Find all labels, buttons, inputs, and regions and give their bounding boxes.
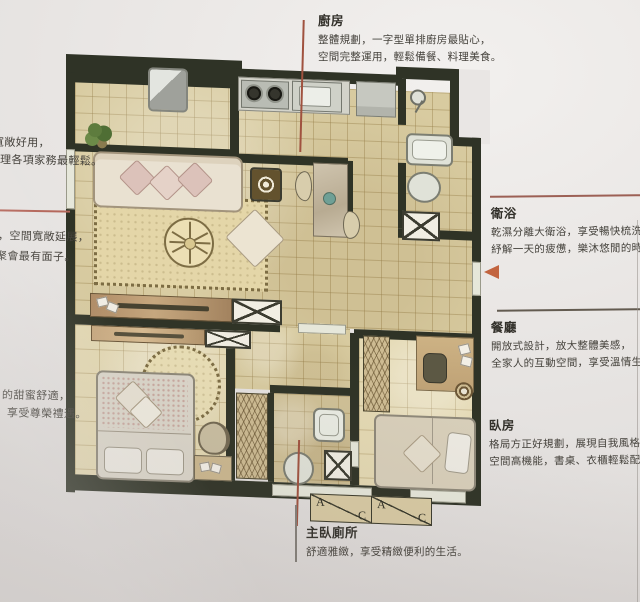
hall-sliding-door [298, 323, 346, 335]
desk-item [458, 343, 471, 355]
bathtub-icon [406, 133, 453, 167]
bathroom-annotation: 衛浴 乾濕分離大衛浴，享受暢快梳洗， 紓解一天的疲憊，樂沐悠閒的時光。 [491, 201, 640, 259]
dining-line: 全家人的互動空間，享受溫情生活。 [491, 354, 640, 373]
bed-master-icon [96, 370, 195, 483]
floor-hallway-tiles [235, 324, 350, 392]
wall-bedroom2-left-a [350, 333, 359, 441]
wardrobe-bedroom2-icon [363, 335, 390, 412]
master-toilet-title: 主臥廁所 [306, 522, 468, 541]
bedroom-line: 空間高機能，書桌、衣櫃輕鬆配置。 [489, 452, 640, 471]
left-bottom-line1: 的甜蜜舒適， [2, 386, 71, 403]
nightstand-icon [194, 455, 232, 481]
wall-tv-icon [148, 67, 188, 113]
wardrobe-master-icon [236, 393, 268, 480]
entrance-threshold [472, 262, 481, 296]
dining-separator-line [497, 308, 640, 311]
ac-label-a: A [377, 497, 386, 512]
dresser-shaft-icon [205, 329, 251, 349]
left-mid-line1: ，空間寬敞延展， [0, 227, 89, 245]
stove-burner [268, 87, 282, 102]
wall-bath-left-a [398, 79, 406, 125]
speaker-icon [455, 382, 473, 401]
bedroom-chair-icon [198, 421, 230, 455]
duvet-fold [98, 430, 191, 435]
kitchen-line: 整體規劃，一字型單排廚房最貼心， [318, 32, 502, 49]
toilet-icon [407, 171, 441, 203]
side-table-icon [250, 167, 282, 202]
bath-separator-line [490, 194, 640, 198]
shower-tray-icon [313, 407, 345, 442]
bedroom-title: 臥房 [489, 413, 640, 434]
bedroom-annotation: 臥房 格局方正好規劃，展現自我風格， 空間高機能，書桌、衣櫃輕鬆配置。 [489, 413, 640, 471]
left-separator-line [0, 209, 70, 212]
cabinet-shaft-icon [232, 298, 282, 325]
bed-pillow [146, 448, 184, 475]
brochure-page: A C A C 廚房 整體規劃，一字型單排廚房最貼心， 空間完整運用，輕鬆備餐、… [0, 0, 640, 602]
page-edge-line [637, 220, 639, 602]
dining-chair-icon [295, 171, 312, 202]
master-toilet-line: 舒適雅緻，享受精緻便利的生活。 [306, 544, 468, 561]
stove-burner [247, 86, 261, 101]
bed-cushion [402, 434, 442, 474]
bed-pillow [104, 446, 142, 473]
dining-annotation: 餐廳 開放式設計，放大整體美感， 全家人的互動空間，享受溫情生活。 [491, 315, 640, 373]
kitchen-annotation: 廚房 整體規劃，一字型單排廚房最貼心， 空間完整運用，輕鬆備餐、料理美食。 [318, 10, 502, 66]
dining-line: 開放式設計，放大整體美感， [491, 337, 640, 356]
kitchen-title: 廚房 [318, 10, 502, 29]
dresser-tv-icon [114, 332, 184, 339]
bath-shaft-icon [324, 450, 352, 481]
wall-left [66, 72, 75, 492]
left-top-line2: 理各項家務最輕鬆。 [0, 151, 103, 169]
bathtub-inner [412, 139, 447, 160]
bed-pillow [444, 432, 472, 475]
stove-icon [241, 80, 289, 110]
sink-basin [299, 86, 331, 107]
ac-label-a: A [316, 495, 325, 510]
dining-title: 餐廳 [491, 315, 640, 336]
left-bottom-line2: 享受尊榮禮遇。 [7, 404, 87, 421]
bed-bedroom2-icon [374, 414, 476, 492]
bedroom-line: 格局方正好規劃，展現自我風格， [489, 435, 640, 454]
bathroom-title: 衛浴 [491, 201, 640, 222]
page-notch [459, 69, 490, 144]
entrance-arrow-icon [484, 265, 499, 279]
book-icon [210, 463, 222, 474]
floor-plan: A C A C [66, 50, 490, 532]
ac-unit-box: A C [310, 493, 372, 523]
tv-icon [117, 303, 209, 312]
desk-chair-icon [423, 353, 447, 384]
kitchen-line: 空間完整運用，輕鬆備餐、料理美食。 [318, 49, 502, 66]
desk-icon [416, 335, 474, 392]
master-toilet-annotation: 主臥廁所 舒適雅緻，享受精緻便利的生活。 [306, 522, 468, 561]
shower-tray-inner [319, 414, 339, 437]
teapot-icon [323, 192, 336, 205]
pipe-shaft-icon [402, 211, 440, 241]
desk-item [460, 355, 473, 367]
toilet-text-rule [295, 505, 297, 562]
refrigerator-icon [356, 81, 396, 118]
wall-bath-right [450, 73, 459, 145]
bathroom-line: 乾濕分離大衛浴，享受暢快梳洗， [491, 223, 640, 242]
rug-hub [184, 238, 196, 250]
left-mid-line2: 聚會最有面子。 [0, 247, 76, 264]
bathroom-line: 紓解一天的疲憊，樂沐悠閒的時光。 [491, 240, 640, 259]
shower-head-icon [410, 89, 426, 106]
left-top-line1: 寬敞好用， [0, 134, 50, 151]
wall-wardrobe-divider [268, 393, 274, 482]
plant-icon [88, 123, 102, 138]
